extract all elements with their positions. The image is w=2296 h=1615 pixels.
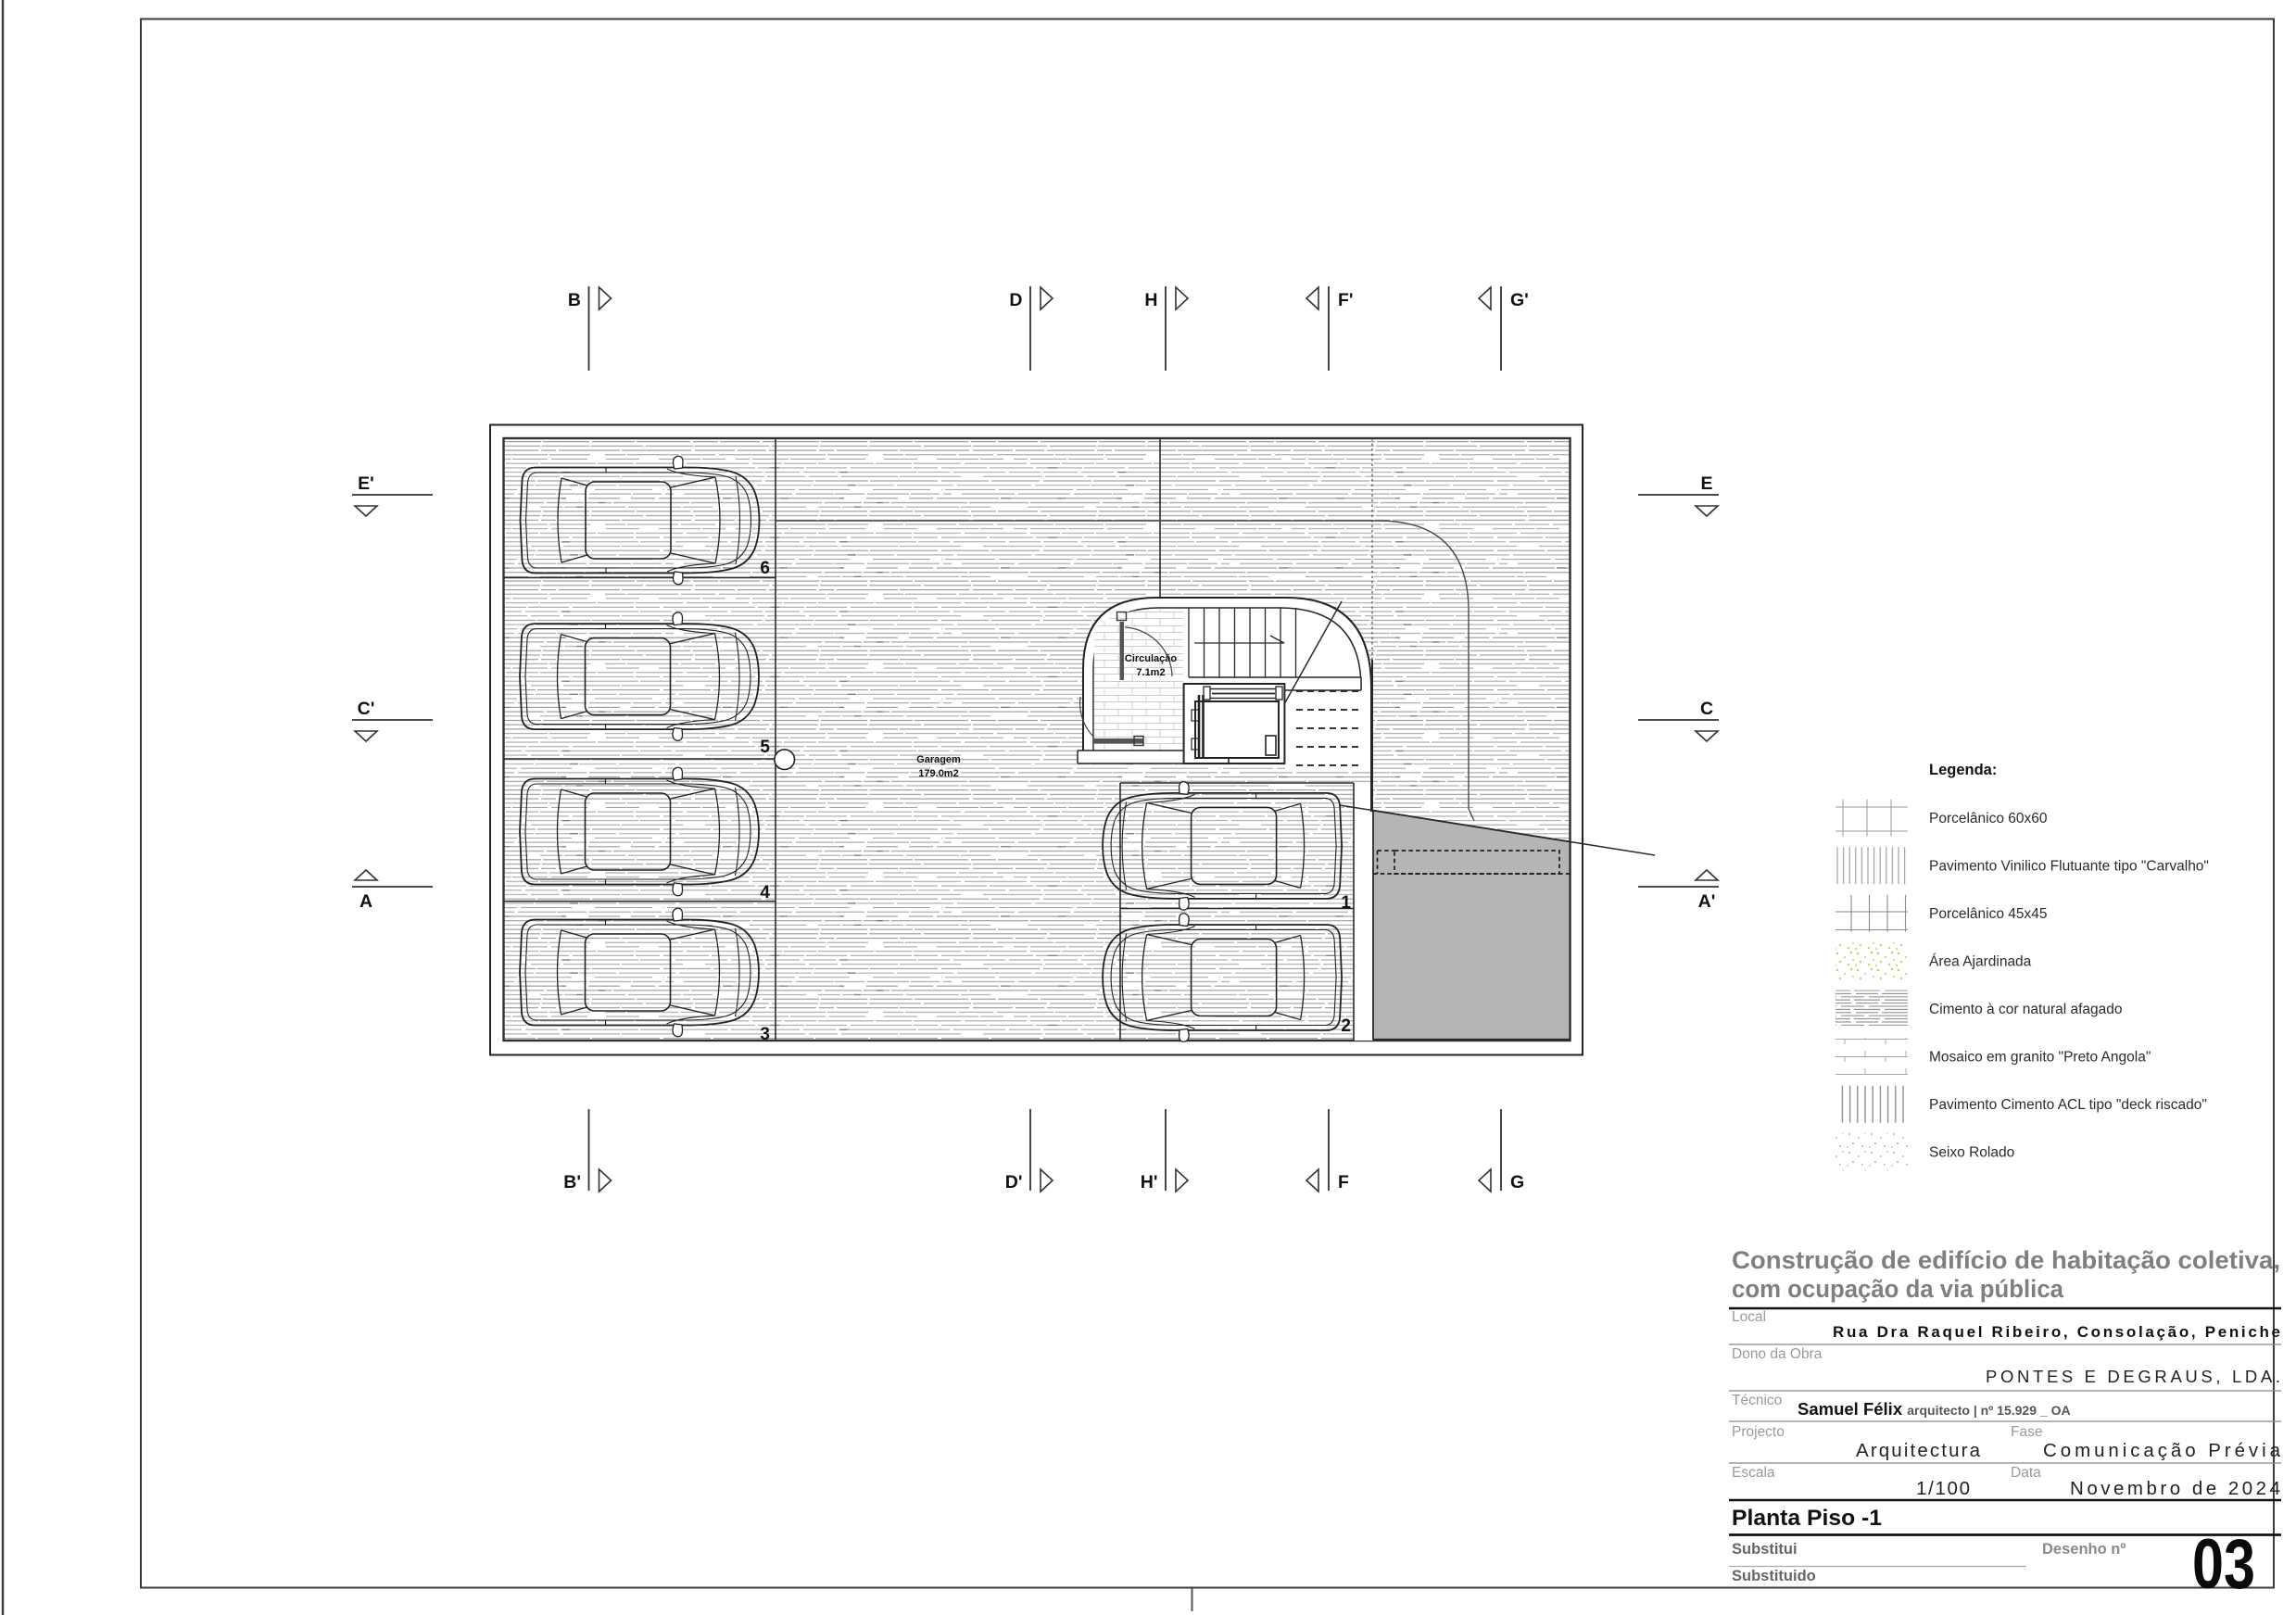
svg-text:E: E [1700,473,1712,494]
svg-text:H': H' [1141,1172,1158,1192]
svg-text:G: G [1510,1172,1524,1192]
svg-text:4: 4 [760,883,770,902]
svg-text:PONTES E DEGRAUS, LDA.: PONTES E DEGRAUS, LDA. [1986,1367,2280,1386]
svg-text:Dono da Obra: Dono da Obra [1732,1346,1823,1362]
svg-text:F: F [1338,1172,1349,1192]
svg-text:179.0m2: 179.0m2 [918,768,958,779]
svg-text:A: A [360,891,372,912]
svg-text:Comunicação Prévia: Comunicação Prévia [2043,1440,2281,1461]
svg-text:Legenda:: Legenda: [1929,762,1997,778]
svg-text:G': G' [1510,290,1529,310]
svg-text:Pavimento Cimento ACL tipo "de: Pavimento Cimento ACL tipo "deck riscado… [1929,1097,2207,1113]
svg-text:7.1m2: 7.1m2 [1136,667,1165,678]
svg-text:Construção de edifício de habi: Construção de edifício de habitação cole… [1732,1246,2280,1274]
svg-text:Técnico: Técnico [1732,1393,1782,1408]
svg-text:Cimento à cor natural afagado: Cimento à cor natural afagado [1929,1002,2123,1017]
svg-text:1/100: 1/100 [1916,1478,1970,1499]
svg-text:Desenho nº: Desenho nº [2042,1541,2126,1558]
svg-text:Área Ajardinada: Área Ajardinada [1929,954,2032,970]
svg-text:H: H [1144,290,1157,310]
svg-text:Seixo Rolado: Seixo Rolado [1929,1145,2014,1161]
svg-text:03: 03 [2192,1525,2255,1604]
svg-text:Projecto: Projecto [1732,1424,1785,1440]
svg-text:6: 6 [760,559,770,578]
svg-text:Porcelânico 60x60: Porcelânico 60x60 [1929,811,2048,826]
svg-text:B: B [568,290,581,310]
svg-text:Local: Local [1732,1309,1766,1325]
svg-text:Escala: Escala [1732,1465,1775,1481]
svg-text:Substituido: Substituido [1732,1568,1816,1584]
svg-text:A': A' [1698,891,1716,912]
svg-text:Substitui: Substitui [1732,1541,1798,1558]
svg-text:Planta Piso -1: Planta Piso -1 [1732,1506,1882,1531]
svg-text:Novembro de 2024: Novembro de 2024 [2070,1478,2280,1499]
svg-text:Pavimento Vinilico Flutuante t: Pavimento Vinilico Flutuante tipo "Carva… [1929,859,2209,875]
svg-text:Circulação: Circulação [1125,653,1178,664]
svg-text:E': E' [358,473,374,494]
svg-text:C': C' [358,699,375,719]
svg-text:Samuel Félix arquitecto | nº 1: Samuel Félix arquitecto | nº 15.929 _ OA [1798,1399,2071,1419]
svg-text:C: C [1700,699,1713,719]
svg-text:Rua Dra Raquel Ribeiro, Consol: Rua Dra Raquel Ribeiro, Consolação, Peni… [1833,1323,2280,1341]
svg-text:com ocupação da via pública: com ocupação da via pública [1732,1275,2064,1303]
svg-text:D': D' [1005,1172,1023,1192]
svg-text:Mosaico em granito "Preto Ango: Mosaico em granito "Preto Angola" [1929,1050,2151,1066]
svg-text:B': B' [563,1172,581,1192]
svg-text:Arquitectura: Arquitectura [1856,1440,1981,1461]
svg-text:3: 3 [760,1025,770,1044]
svg-text:1: 1 [1341,893,1351,913]
svg-text:Porcelânico 45x45: Porcelânico 45x45 [1929,906,2048,922]
svg-text:2: 2 [1341,1016,1351,1036]
svg-text:Fase: Fase [2011,1424,2042,1440]
svg-text:5: 5 [760,738,770,757]
svg-text:F': F' [1338,290,1354,310]
svg-text:Data: Data [2011,1465,2041,1481]
svg-text:D: D [1009,290,1022,310]
svg-text:Garagem: Garagem [916,754,961,765]
